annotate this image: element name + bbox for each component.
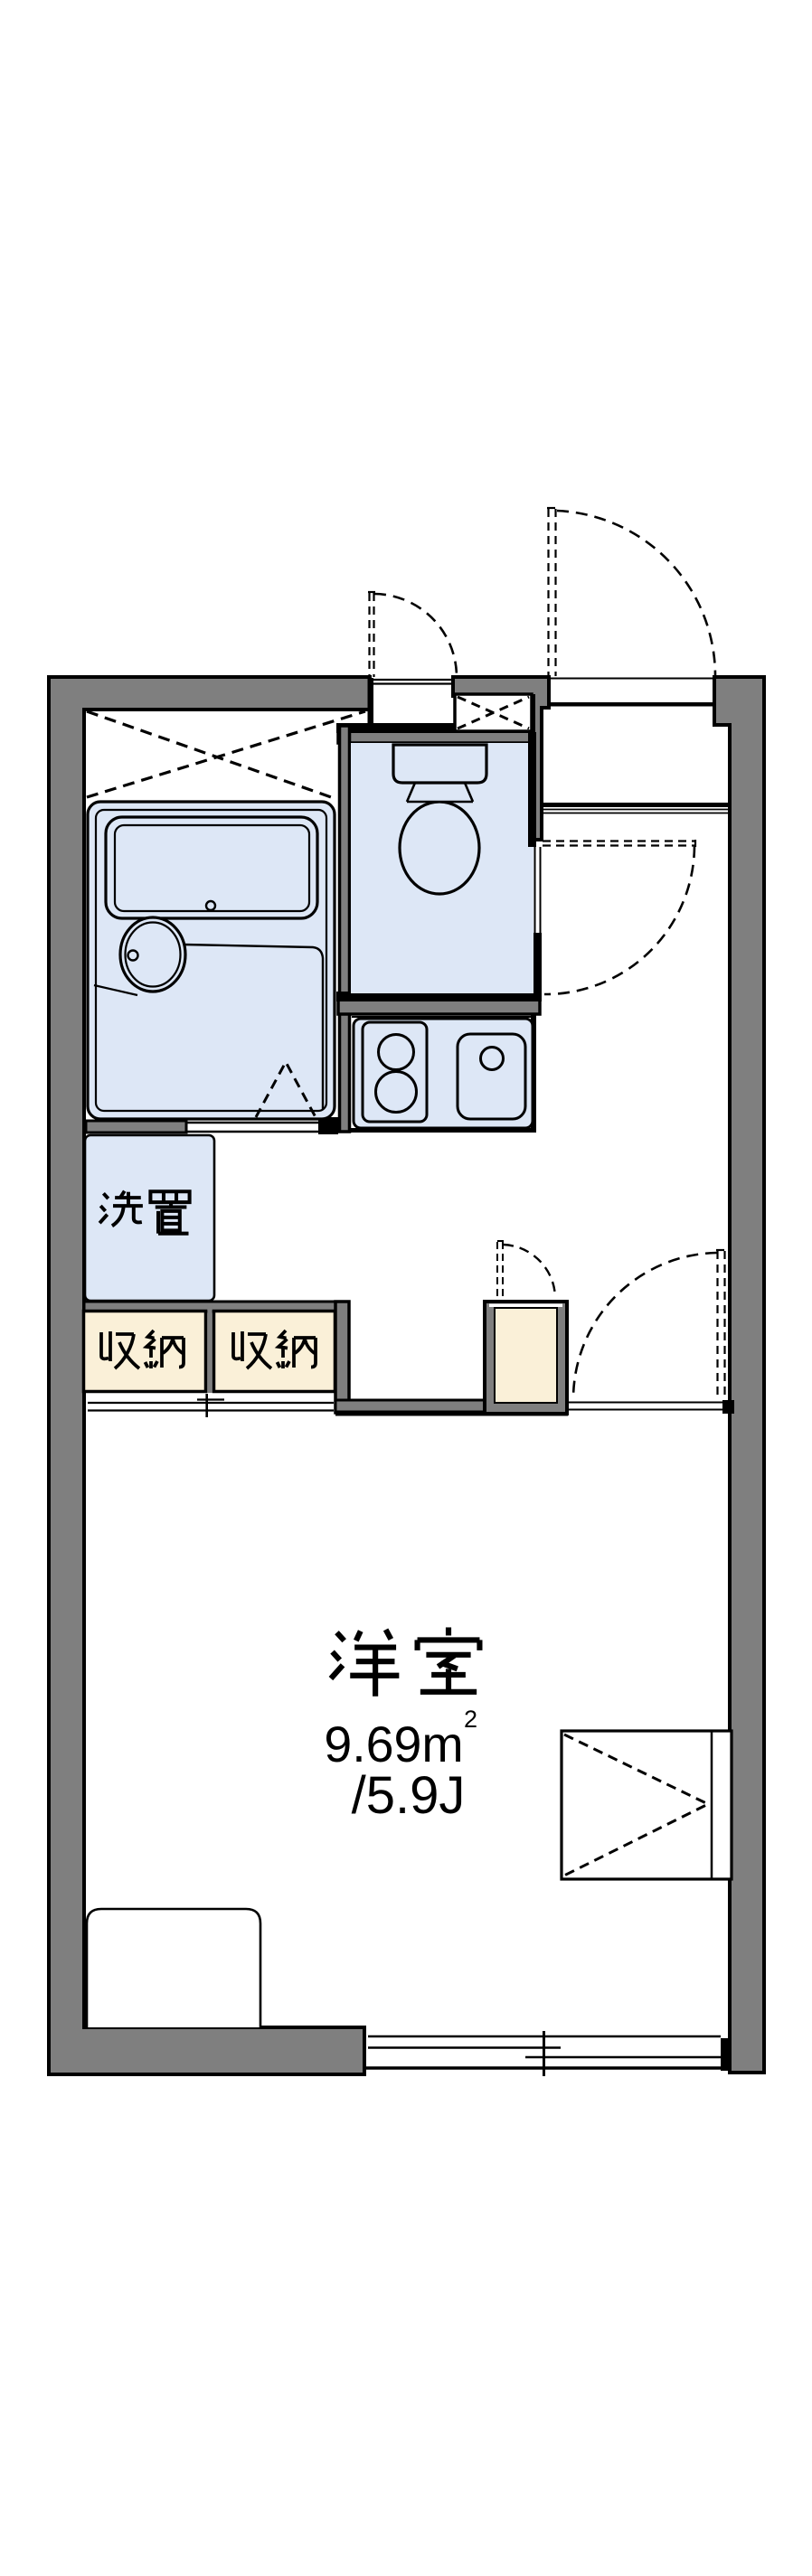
svg-text:2: 2 [464,1706,477,1733]
svg-text:/5.9J: /5.9J [352,1766,466,1825]
svg-text:9.69m: 9.69m [324,1716,463,1772]
